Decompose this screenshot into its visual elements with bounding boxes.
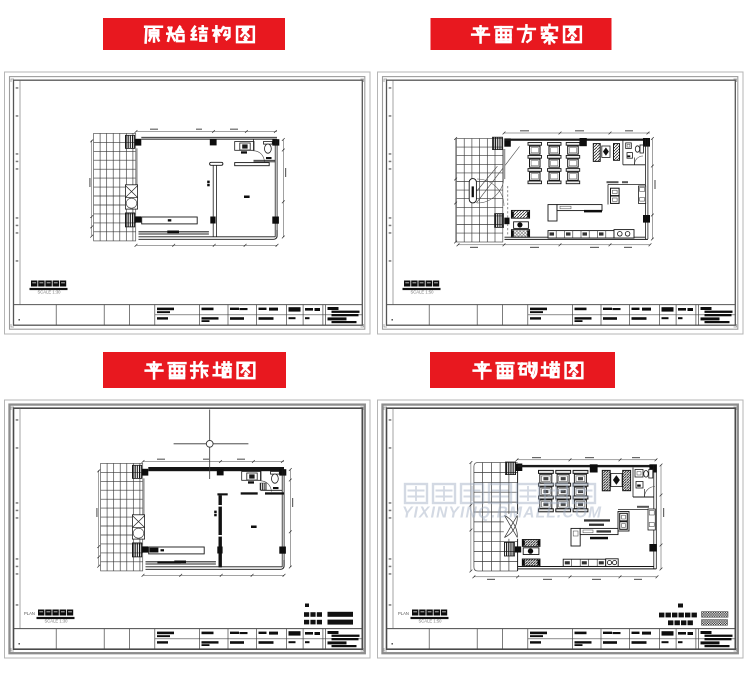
svg-text:YIXINYINQ.BMALL.COM: YIXINYINQ.BMALL.COM [402, 505, 602, 522]
svg-text:SCALE 1:30: SCALE 1:30 [37, 290, 61, 295]
svg-text:SCALE 1:50: SCALE 1:50 [410, 290, 434, 295]
svg-text:PLAN: PLAN [24, 611, 35, 616]
svg-text:SCALE 1:50: SCALE 1:50 [418, 619, 442, 624]
svg-text:SCALE 1:30: SCALE 1:30 [44, 619, 68, 624]
svg-text:PLAN: PLAN [398, 611, 409, 616]
